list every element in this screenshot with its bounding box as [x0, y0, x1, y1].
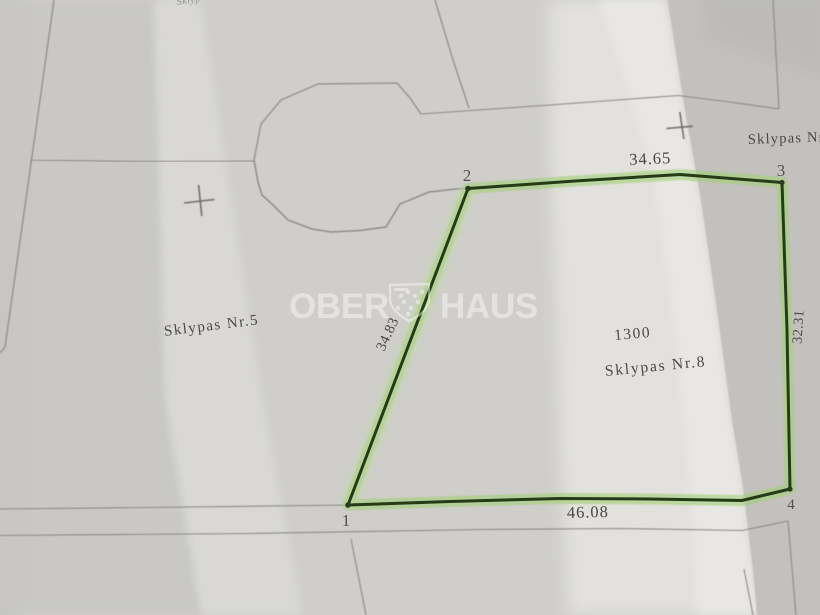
svg-text:1: 1	[342, 511, 351, 530]
svg-text:OBER: OBER	[289, 287, 389, 326]
svg-text:Sklypas Nr.: Sklypas Nr.	[748, 129, 820, 148]
svg-text:HAUS: HAUS	[440, 287, 538, 326]
svg-text:34.65: 34.65	[629, 148, 672, 169]
svg-text:32.31: 32.31	[790, 309, 807, 344]
svg-text:2: 2	[463, 166, 472, 185]
svg-text:46.08: 46.08	[567, 502, 610, 522]
svg-text:1300: 1300	[613, 324, 651, 344]
svg-text:4: 4	[787, 497, 795, 513]
svg-text:3: 3	[777, 161, 786, 180]
